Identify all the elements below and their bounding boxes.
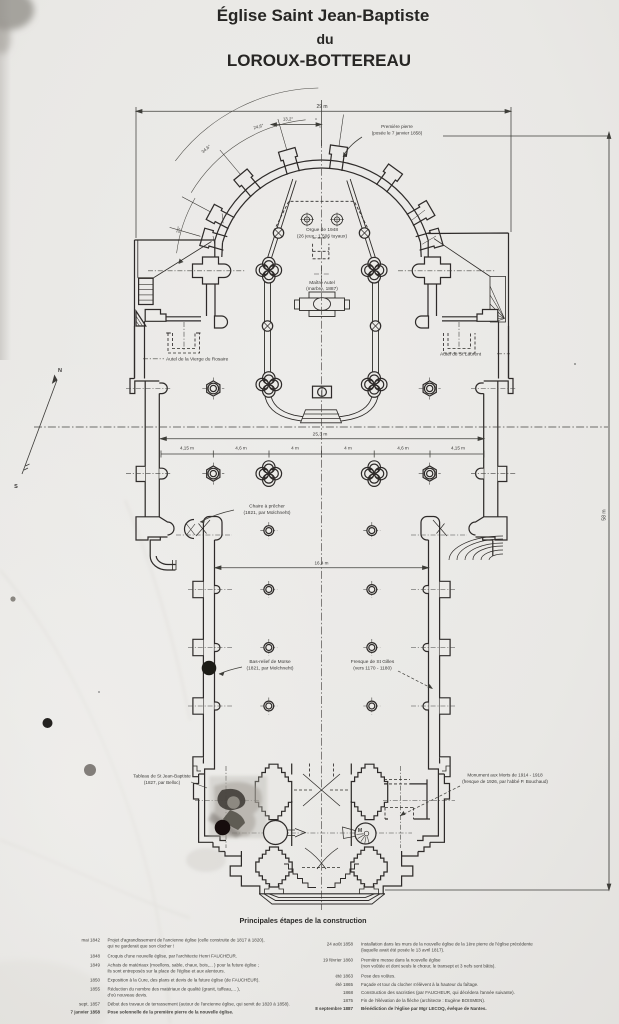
svg-text:Début des travaux de terrassem: Début des travaux de terrassement (autou…	[108, 1002, 290, 1007]
svg-text:Maître Autel: Maître Autel	[309, 280, 335, 286]
svg-text:Église Saint Jean-Baptiste: Église Saint Jean-Baptiste	[217, 6, 430, 25]
svg-text:4,6 m: 4,6 m	[235, 446, 247, 451]
svg-text:8 septembre 1887: 8 septembre 1887	[315, 1006, 353, 1011]
svg-text:Monument aux Morts de 1914 - 1: Monument aux Morts de 1914 - 1918	[467, 773, 543, 778]
svg-text:24 août 1858: 24 août 1858	[327, 942, 354, 947]
svg-text:4,15 m: 4,15 m	[451, 446, 465, 451]
svg-text:Fin de l'élévation de la flèch: Fin de l'élévation de la flèche (archite…	[361, 998, 485, 1003]
svg-text:Installation dans les murs de: Installation dans les murs de la nouvell…	[361, 942, 533, 947]
svg-text:Première messe dans la nouvell: Première messe dans la nouvelle église	[361, 958, 441, 963]
svg-text:Réduction du nombre des matéri: Réduction du nombre des matériaux de qua…	[108, 987, 241, 992]
svg-text:Exposition à la Cure, des plan: Exposition à la Cure, des plans et devis…	[108, 978, 260, 983]
svg-text:S: S	[14, 484, 18, 490]
svg-text:(non voûtée et dont seuls le c: (non voûtée et dont seuls le chœur, le t…	[361, 964, 496, 969]
svg-text:(laquelle avait été posée le 1: (laquelle avait été posée le 13 avril 18…	[361, 948, 444, 953]
svg-text:(vers 1170 - 1180): (vers 1170 - 1180)	[353, 666, 392, 672]
svg-text:Bénédiction de l'église par Mg: Bénédiction de l'église par Mgr LECOQ, é…	[361, 1006, 487, 1011]
svg-text:sept. 1857: sept. 1857	[79, 1002, 101, 1007]
svg-text:13,2°: 13,2°	[283, 117, 294, 122]
svg-text:4 m: 4 m	[344, 446, 352, 451]
svg-text:Pose des voûtes.: Pose des voûtes.	[361, 974, 396, 979]
svg-text:(26 jeux ; 1 506 tuyaux): (26 jeux ; 1 506 tuyaux)	[297, 234, 348, 240]
svg-text:1848: 1848	[90, 954, 101, 959]
svg-text:58 m: 58 m	[602, 509, 608, 520]
svg-text:Façade et tour du clocher s'él: Façade et tour du clocher s'élèvent à la…	[361, 982, 478, 987]
svg-text:25,3 m: 25,3 m	[313, 432, 328, 438]
svg-text:Fresque de St Gilles: Fresque de St Gilles	[351, 659, 395, 665]
svg-text:qui ne garderait que son cloch: qui ne garderait que son clocher !	[108, 944, 175, 949]
svg-text:(1821, par Molchneht): (1821, par Molchneht)	[247, 666, 294, 672]
svg-text:(1821, par Molchneht): (1821, par Molchneht)	[244, 510, 291, 516]
svg-text:1849: 1849	[90, 963, 101, 968]
svg-text:LOROUX-BOTTEREAU: LOROUX-BOTTEREAU	[227, 51, 411, 70]
svg-text:1850: 1850	[90, 978, 101, 983]
svg-text:Autel de la Vierge du Rosaire: Autel de la Vierge du Rosaire	[166, 357, 229, 363]
svg-text:Construction des sacristies (p: Construction des sacristies (par FAUCHEU…	[361, 990, 515, 995]
svg-text:M: M	[358, 828, 362, 834]
svg-text:mai 1842: mai 1842	[81, 937, 100, 942]
svg-text:Achats de matériaux (moellons,: Achats de matériaux (moellons, sable, ch…	[108, 963, 259, 968]
svg-text:été 1863: été 1863	[335, 974, 353, 979]
svg-text:1855: 1855	[90, 987, 101, 992]
svg-text:ils sont entreposés sur la pla: ils sont entreposés sur la place de l'ég…	[108, 969, 225, 974]
svg-text:Tableau de St Jean-Baptiste: Tableau de St Jean-Baptiste	[133, 774, 191, 779]
svg-text:du: du	[316, 31, 333, 47]
svg-text:été 1865: été 1865	[335, 982, 353, 987]
svg-text:Principales étapes de la const: Principales étapes de la construction	[239, 916, 366, 925]
svg-text:Première pierre: Première pierre	[381, 124, 413, 129]
svg-text:(1827, par Belloc): (1827, par Belloc)	[144, 780, 181, 785]
svg-text:Autel de St Laurent: Autel de St Laurent	[440, 352, 482, 358]
svg-text:d'où nouveau devis.: d'où nouveau devis.	[108, 993, 148, 998]
svg-text:Projet d'agrandissement de l'a: Projet d'agrandissement de l'ancienne ég…	[108, 937, 265, 942]
svg-text:1868: 1868	[343, 990, 354, 995]
svg-text:Croquis d'une nouvelle église,: Croquis d'une nouvelle église, par l'arc…	[108, 954, 238, 959]
svg-text:Chaire à prêcher: Chaire à prêcher	[249, 504, 285, 510]
svg-text:19 février 1860: 19 février 1860	[323, 958, 354, 963]
svg-text:29 m: 29 m	[316, 104, 327, 110]
svg-text:4,15 m: 4,15 m	[180, 446, 194, 451]
svg-text:7 janvier 1858: 7 janvier 1858	[70, 1010, 100, 1015]
svg-text:(fresque de 1926, par l'abbé P: (fresque de 1926, par l'abbé P. Bouchaud…	[462, 779, 548, 784]
svg-text:(posée le 7 janvier 1858): (posée le 7 janvier 1858)	[372, 131, 423, 136]
svg-text:4,6 m: 4,6 m	[397, 446, 409, 451]
svg-text:Orgue de 1948: Orgue de 1948	[306, 227, 338, 233]
svg-text:(marbre, 1887): (marbre, 1887)	[306, 286, 338, 292]
svg-text:Bas-relief de Moïse: Bas-relief de Moïse	[249, 659, 291, 665]
svg-text:Pose solennelle de la première: Pose solennelle de la première pierre de…	[108, 1010, 234, 1015]
svg-text:1875: 1875	[343, 998, 354, 1003]
svg-text:N: N	[58, 368, 62, 374]
svg-text:4 m: 4 m	[291, 446, 299, 451]
